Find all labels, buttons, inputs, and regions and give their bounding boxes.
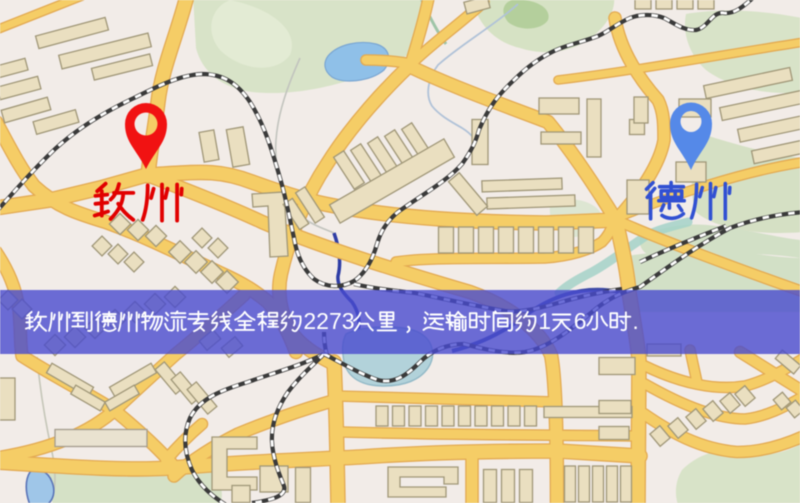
- svg-text:2273: 2273: [303, 308, 354, 334]
- svg-text:6: 6: [574, 308, 587, 334]
- svg-text:1: 1: [538, 308, 551, 334]
- svg-text:.: .: [632, 308, 638, 334]
